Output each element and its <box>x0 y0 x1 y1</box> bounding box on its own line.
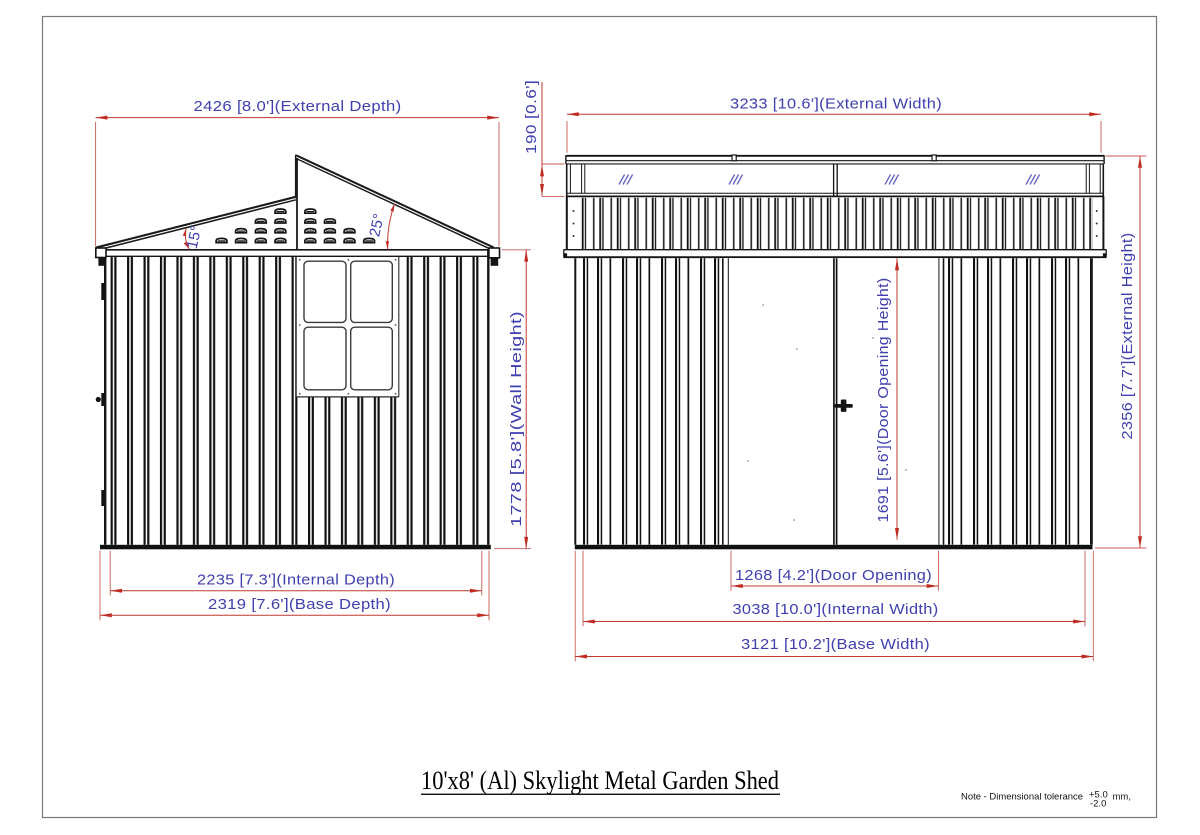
svg-text:1268 [4.2'](Door Opening): 1268 [4.2'](Door Opening) <box>735 567 932 584</box>
svg-text:3038 [10.0'](Internal Width): 3038 [10.0'](Internal Width) <box>733 601 939 618</box>
svg-text:2356 [7.7'](External Height): 2356 [7.7'](External Height) <box>1119 233 1136 440</box>
svg-text:2319 [7.6'](Base Depth): 2319 [7.6'](Base Depth) <box>208 596 391 613</box>
svg-text:1691 [5.6'](Door Opening He: 1691 [5.6'](Door Opening Height) <box>875 278 892 523</box>
svg-text:10'x8' (Al) Skylight Metal Gar: 10'x8' (Al) Skylight Metal Garden Shed <box>421 766 779 795</box>
svg-text:1778 [5.8'](Wall Height): 1778 [5.8'](Wall Height) <box>508 311 525 527</box>
svg-text:190 [0.6']: 190 [0.6'] <box>523 80 540 154</box>
svg-text:3233 [10.6'](External Width): 3233 [10.6'](External Width) <box>730 96 942 113</box>
svg-text:2235 [7.3'](Internal Depth): 2235 [7.3'](Internal Depth) <box>197 572 395 589</box>
svg-text:3121 [10.2'](Base Width): 3121 [10.2'](Base Width) <box>741 636 930 653</box>
svg-text:mm,: mm, <box>1113 792 1131 803</box>
svg-text:Note - Dimensional toleranc: Note - Dimensional tolerance <box>961 792 1083 803</box>
svg-text:2426 [8.0'](External Depth): 2426 [8.0'](External Depth) <box>194 98 402 115</box>
svg-text:-2.0: -2.0 <box>1090 799 1106 810</box>
